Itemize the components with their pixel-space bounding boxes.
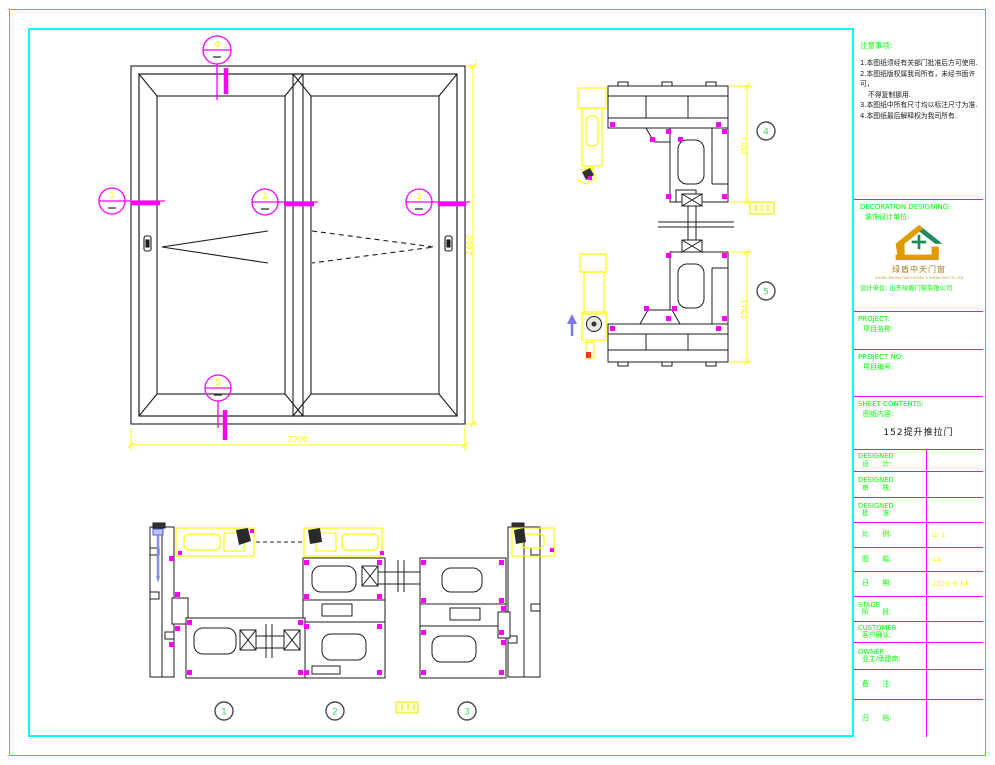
dim-sill: 150.1 <box>740 299 748 319</box>
paper-size-value: A4 <box>927 548 983 571</box>
elevation-view <box>131 66 465 424</box>
row-value <box>927 670 983 699</box>
row-scale: 比 例: 1: 1 <box>854 523 983 548</box>
note-line: 4.本图纸最后解释权为我司所有. <box>860 111 978 122</box>
row-value <box>927 700 983 737</box>
svg-text:5: 5 <box>763 288 769 298</box>
detail-bubble-2: 2 <box>326 702 344 720</box>
left-door-handle <box>144 236 151 251</box>
project-no-section: PROJECT NO: 项目编号: <box>854 350 983 397</box>
row-value <box>927 622 983 642</box>
scale-value: 1: 1 <box>927 523 983 547</box>
row-value <box>927 498 983 522</box>
row-designed-2: DESIGNED审 核: <box>854 472 983 498</box>
row-value <box>927 643 983 669</box>
dim-head: 150.1 <box>740 136 748 156</box>
horizontal-section-detail <box>150 523 554 678</box>
svg-text:2: 2 <box>332 708 338 718</box>
vertical-section-detail <box>567 82 734 366</box>
row-designed-1: DESIGNED设 计: <box>854 450 983 472</box>
detail-bubble-5: 5 <box>757 282 775 300</box>
vertical-detail-dimensions: 150.1 150.1 <box>730 83 752 365</box>
note-line: 3.本图纸中所有尺寸均以标注尺寸为准. <box>860 100 978 111</box>
drawing-area: 2400 2200 4 1 <box>0 0 995 765</box>
project-label-cn: 项目名称: <box>858 324 979 334</box>
notes-section: 注意事项: 1.本图纸须经有关部门批准后方可使用. 2.本图纸版权属我司所有，未… <box>854 28 983 200</box>
project-label-en: PROJECT: <box>858 315 979 323</box>
row-date: 日 期: 2020-9-14 <box>854 572 983 597</box>
stamp-box-right <box>750 202 774 214</box>
project-no-label-cn: 项目编号: <box>858 362 979 372</box>
row-paper-size: 图 幅: A4 <box>854 548 983 572</box>
row-owner: OWNER业主/承建商: <box>854 643 983 670</box>
project-section: PROJECT: 项目名称: <box>854 312 983 350</box>
note-line: 1.本图纸须经有关部门批准后方可使用. <box>860 58 978 69</box>
width-dimension: 2200 <box>288 435 308 444</box>
svg-text:1: 1 <box>221 708 227 718</box>
opening-symbol-left <box>162 231 268 263</box>
row-stage: STAGE阶 段: <box>854 597 983 622</box>
detail-bubble-4: 4 <box>757 122 775 140</box>
notes-title: 注意事项: <box>860 40 978 51</box>
section-marker-bottom: 5 <box>205 375 231 440</box>
detail-bubble-1: 1 <box>215 702 233 720</box>
section-marker-top: 4 <box>203 36 231 100</box>
stamp-box-bottom <box>396 702 418 713</box>
company-logo-name: 绿盾中天门窗 <box>860 264 978 275</box>
section-marker-right: 3 <box>406 189 470 215</box>
decoration-title-en: DECORATION DESIGNING: <box>860 203 978 211</box>
row-customer: CUSTOMER客户确认: <box>854 622 983 643</box>
section-marker-left: 1 <box>99 188 165 214</box>
decoration-title-cn: 装饰设计单位: <box>860 212 978 222</box>
sheet-contents-label-cn: 图纸内容: <box>858 409 979 419</box>
svg-text:3: 3 <box>416 192 422 202</box>
opening-symbol-right <box>312 231 434 263</box>
company-logo-icon <box>889 224 949 264</box>
row-value <box>927 450 983 471</box>
decoration-designing-section: DECORATION DESIGNING: 装饰设计单位: 绿盾中天门窗 LVD… <box>854 200 983 312</box>
svg-text:4: 4 <box>214 40 220 50</box>
row-value <box>927 472 983 497</box>
design-unit: 设计单位: 山东绿盾门窗有限公司 <box>860 283 978 292</box>
row-designed-3: DESIGNED批 准: <box>854 498 983 523</box>
note-line: 不得复制挪用. <box>860 90 978 101</box>
svg-text:1: 1 <box>109 191 115 201</box>
sheet-contents-label-en: SHEET CONTENTS: <box>858 400 979 408</box>
title-block-rows: DESIGNED设 计: DESIGNED审 核: DESIGNED批 准: 比… <box>854 450 983 737</box>
detail-bubble-3: 3 <box>458 702 476 720</box>
svg-text:5: 5 <box>215 378 221 388</box>
row-remark: 备 注: <box>854 670 983 700</box>
height-dimension: 2400 <box>465 235 474 255</box>
title-block: 注意事项: 1.本图纸须经有关部门批准后方可使用. 2.本图纸版权属我司所有，未… <box>852 28 983 737</box>
right-door-handle <box>445 236 452 251</box>
note-line: 2.本图纸版权属我司所有，未经书面许可， <box>860 69 978 90</box>
sheet-contents-section: SHEET CONTENTS: 图纸内容: 152提升推拉门 <box>854 397 983 450</box>
cad-sheet: 2400 2200 4 1 <box>0 0 995 765</box>
row-archive: 归 档: <box>854 700 983 737</box>
svg-text:2: 2 <box>262 192 268 202</box>
date-value: 2020-9-14 <box>927 572 983 596</box>
direction-arrow-icon <box>567 314 577 336</box>
row-value <box>927 597 983 621</box>
company-logo-subtitle: LVDUN ZHONGTIAN DOORS & WINDOWS CO.,LTD <box>866 275 972 280</box>
project-no-label-en: PROJECT NO: <box>858 353 979 361</box>
sheet-contents-value: 152提升推拉门 <box>858 425 979 438</box>
svg-text:4: 4 <box>763 128 769 138</box>
svg-text:3: 3 <box>464 708 470 718</box>
